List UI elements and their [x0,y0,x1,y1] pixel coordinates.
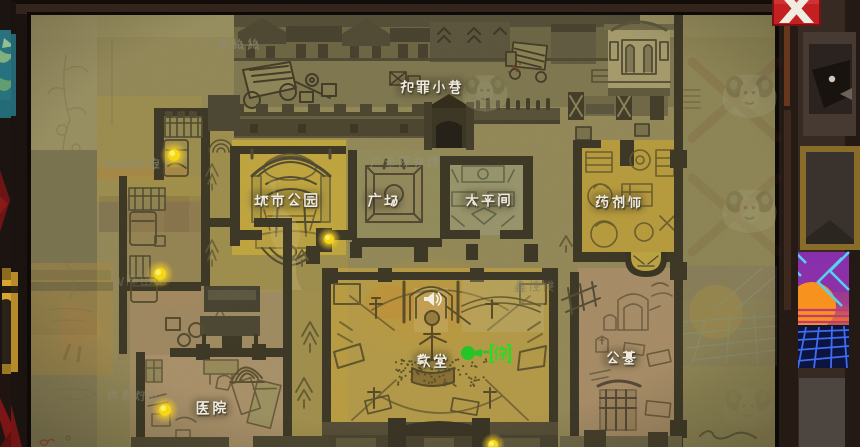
svg-text:DUAN: DUAN [106,157,144,172]
svg-text:W: W [112,274,125,289]
